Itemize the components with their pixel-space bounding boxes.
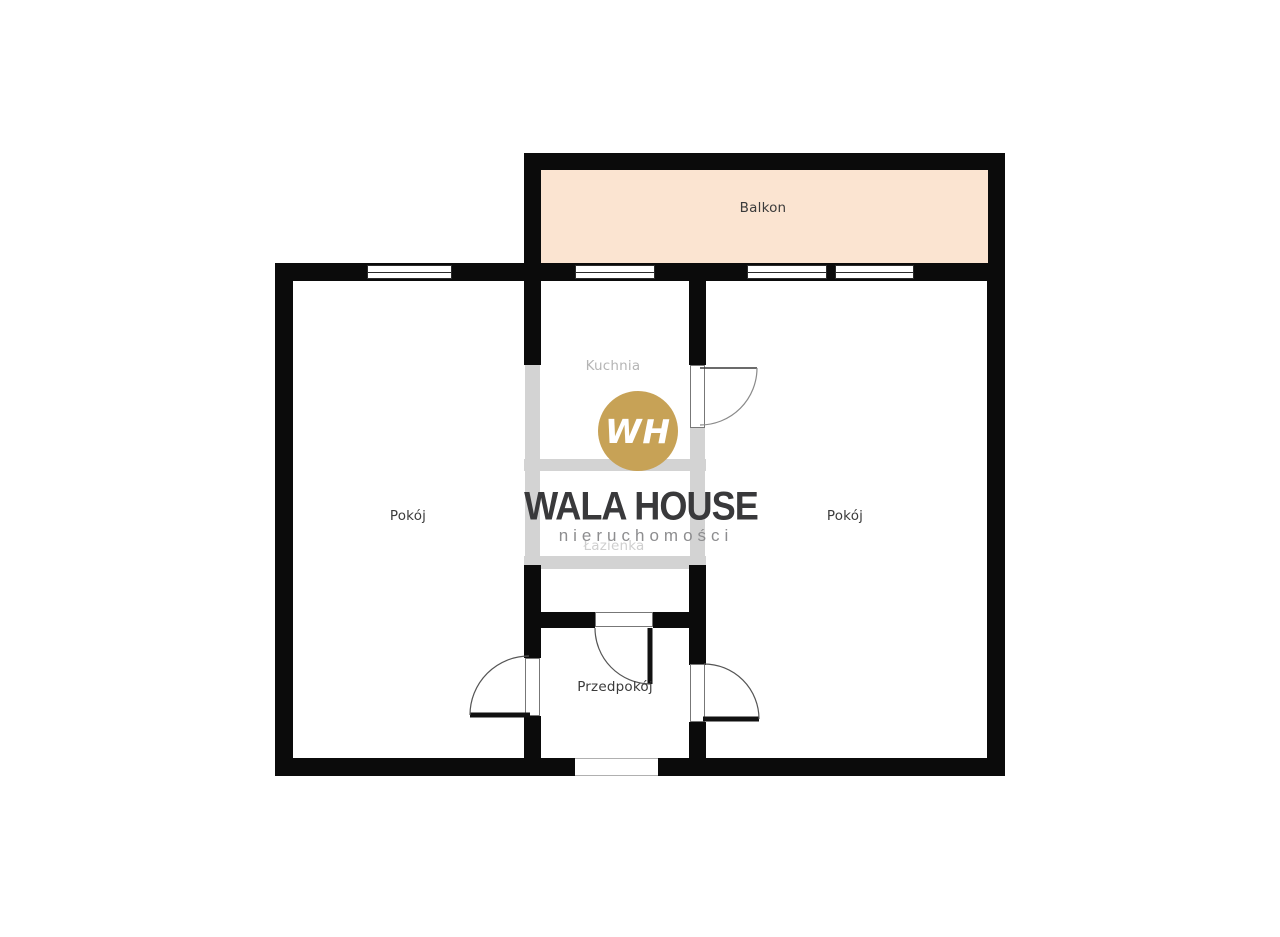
wall-balcony-right	[988, 153, 1005, 271]
brand-name: WALA HOUSE	[524, 485, 758, 530]
wall-mid-left-upper	[524, 278, 541, 365]
room-label-pokoj-left: Pokój	[390, 508, 426, 524]
room-label-przedpokoj: Przedpokój	[577, 679, 653, 695]
door-arc-room-left	[470, 656, 529, 715]
wall-left	[275, 263, 293, 776]
window-kitchen	[575, 265, 655, 279]
doorframe-room-right	[690, 664, 705, 722]
wall-window-mullion	[827, 263, 835, 281]
room-label-pokoj-right: Pokój	[827, 508, 863, 524]
gray-wall-bathroom-divider	[524, 556, 706, 569]
doorframe-kitchen	[690, 365, 705, 428]
wall-bottom-left	[275, 758, 575, 776]
window-room-right-2	[835, 265, 914, 279]
door-arc-room-right	[704, 664, 759, 719]
wall-mid-right-upper	[689, 278, 706, 365]
wall-mid-left-foot	[524, 716, 541, 758]
wall-mid-right-foot	[689, 722, 706, 758]
window-pane-line	[836, 272, 913, 273]
doorframe-hall	[595, 612, 653, 627]
wall-hall-top-left	[524, 612, 595, 628]
brand-monogram: WH	[605, 412, 671, 451]
wall-hall-top-right	[653, 612, 706, 628]
window-pane-line	[748, 272, 826, 273]
entrance-opening	[575, 758, 658, 776]
brand-tagline: nieruchomości	[559, 526, 734, 546]
window-pane-line	[368, 272, 451, 273]
wall-balcony-top	[524, 153, 1005, 170]
doorframe-room-left	[525, 658, 540, 716]
floor-plan: Balkon Pokój Kuchnia Pokój Łazienka Prze…	[0, 0, 1280, 937]
room-label-balkon: Balkon	[740, 200, 787, 216]
door-arc-hall	[595, 628, 650, 684]
brand-logo-circle: WH	[598, 391, 678, 471]
window-room-right-1	[747, 265, 827, 279]
window-pane-line	[576, 272, 654, 273]
wall-balcony-left	[524, 153, 541, 265]
door-arc-kitchen	[700, 368, 757, 425]
balcony-area	[541, 170, 988, 265]
room-label-kuchnia: Kuchnia	[586, 358, 641, 374]
wall-bottom-right	[658, 758, 1005, 776]
window-room-left	[367, 265, 452, 279]
wall-right	[987, 263, 1005, 776]
